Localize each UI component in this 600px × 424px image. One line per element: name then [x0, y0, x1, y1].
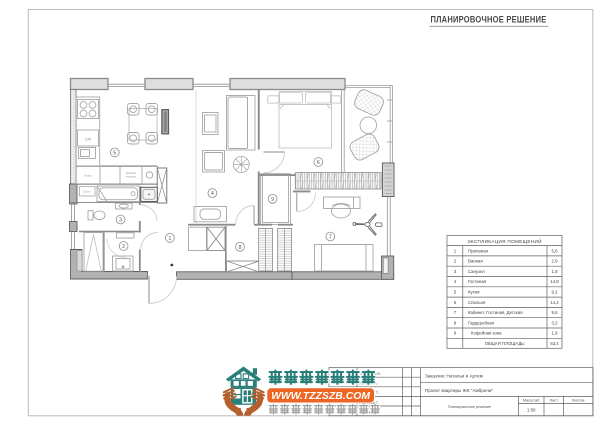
svg-text:Кухня: Кухня [468, 290, 480, 295]
svg-text:Спальня: Спальня [468, 300, 486, 305]
svg-text:Холод.: Холод. [84, 174, 93, 178]
svg-text:1,9: 1,9 [552, 331, 559, 336]
svg-text:ПЛАНИРОВОЧНОЕ РЕШЕНИЕ: ПЛАНИРОВОЧНОЕ РЕШЕНИЕ [431, 15, 547, 26]
svg-text:Ванная: Ванная [468, 259, 483, 264]
svg-text:2: 2 [122, 244, 125, 250]
svg-text:7: 7 [329, 235, 332, 241]
svg-text:WWW.TZZSZB.COM: WWW.TZZSZB.COM [271, 391, 371, 402]
svg-text:Кабинет, Гостиная, Детская: Кабинет, Гостиная, Детская [468, 310, 523, 315]
svg-text:ЭКСПЛИКАЦИЯ ПОМЕЩЕНИЙ: ЭКСПЛИКАЦИЯ ПОМЕЩЕНИЙ [467, 237, 542, 244]
svg-text:посудом.: посудом. [126, 176, 137, 179]
svg-text:9,2: 9,2 [552, 290, 559, 295]
svg-text:Проект квартиры ЖК "Амбрели": Проект квартиры ЖК "Амбрели" [425, 388, 493, 393]
svg-text:5: 5 [113, 150, 116, 156]
svg-text:3,2: 3,2 [552, 320, 559, 325]
svg-text:1,8: 1,8 [552, 269, 559, 274]
svg-text:ОБЩАЯ ПЛОЩАДЬ:: ОБЩАЯ ПЛОЩАДЬ: [485, 341, 526, 346]
svg-text:6: 6 [317, 160, 320, 166]
svg-text:Масштаб: Масштаб [523, 398, 540, 403]
svg-text:Прихожая: Прихожая [468, 248, 489, 253]
svg-text:2,9: 2,9 [552, 259, 559, 264]
svg-text:Сушил.: Сушил. [83, 191, 92, 194]
svg-text:С/М: С/М [85, 138, 91, 142]
svg-text:14,8: 14,8 [550, 279, 559, 284]
svg-text:1: 1 [168, 236, 171, 242]
svg-text:Планировочное решение: Планировочное решение [448, 405, 491, 409]
svg-text:Кофейная зона: Кофейная зона [471, 331, 502, 336]
svg-text:5,6: 5,6 [552, 248, 559, 253]
svg-text:Заказчик: Наталья и Артем: Заказчик: Наталья и Артем [425, 373, 483, 378]
svg-text:Духовка: Духовка [126, 171, 136, 175]
svg-text:3: 3 [119, 218, 122, 224]
svg-text:Гостиная: Гостиная [468, 279, 487, 284]
svg-text:8: 8 [239, 245, 242, 251]
svg-text:9,6: 9,6 [552, 310, 559, 315]
svg-text:4: 4 [211, 191, 214, 197]
svg-text:Гардеробная: Гардеробная [468, 320, 495, 325]
svg-text:63,4: 63,4 [550, 341, 559, 346]
svg-text:9: 9 [271, 197, 274, 203]
svg-text:Листов: Листов [572, 398, 585, 403]
svg-text:14,4: 14,4 [550, 300, 559, 305]
svg-text:1:50: 1:50 [527, 408, 536, 413]
svg-text:Лист: Лист [550, 398, 559, 403]
svg-text:Санузел: Санузел [468, 269, 485, 274]
